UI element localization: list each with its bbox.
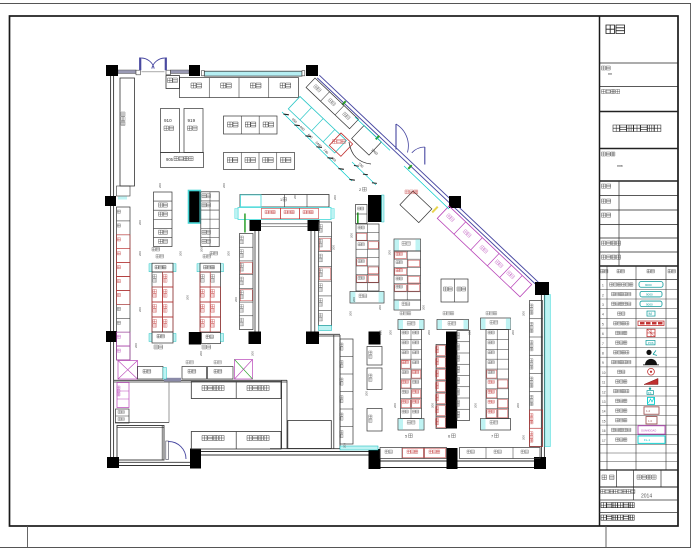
svg-text:200: 200 bbox=[474, 403, 478, 408]
svg-text:7: 7 bbox=[602, 342, 604, 346]
svg-text:13: 13 bbox=[602, 400, 606, 404]
svg-text:**: ** bbox=[608, 73, 612, 79]
svg-text:***: *** bbox=[617, 165, 623, 171]
svg-text:200: 200 bbox=[422, 305, 426, 310]
svg-text:14: 14 bbox=[602, 410, 606, 414]
svg-text:FL-1: FL-1 bbox=[644, 438, 651, 442]
svg-text:POS: POS bbox=[648, 341, 654, 345]
svg-text:M: M bbox=[649, 311, 652, 316]
svg-text:4: 4 bbox=[602, 313, 604, 317]
svg-text:200: 200 bbox=[179, 251, 183, 256]
svg-text:200: 200 bbox=[431, 403, 435, 408]
svg-text:200: 200 bbox=[352, 297, 356, 302]
svg-text:905: 905 bbox=[166, 157, 174, 162]
svg-text:200: 200 bbox=[234, 297, 238, 302]
svg-text:200: 200 bbox=[511, 330, 515, 335]
svg-text:200: 200 bbox=[251, 351, 255, 356]
svg-text:200: 200 bbox=[349, 311, 353, 316]
svg-text:200: 200 bbox=[293, 194, 297, 199]
svg-text:200: 200 bbox=[186, 295, 190, 300]
svg-text:200: 200 bbox=[516, 403, 520, 408]
svg-text:200: 200 bbox=[199, 351, 203, 356]
svg-text:200: 200 bbox=[378, 305, 382, 310]
svg-text:200: 200 bbox=[333, 195, 337, 200]
svg-text:1: 1 bbox=[280, 198, 282, 202]
svg-text:GUANGGAO: GUANGGAO bbox=[641, 428, 656, 432]
svg-text:10: 10 bbox=[602, 371, 606, 375]
svg-text:200: 200 bbox=[522, 435, 526, 440]
svg-text:200: 200 bbox=[138, 251, 142, 256]
svg-text:17: 17 bbox=[602, 439, 606, 443]
svg-text:200: 200 bbox=[222, 183, 226, 188]
svg-text:3: 3 bbox=[602, 303, 604, 307]
svg-text:6: 6 bbox=[602, 332, 604, 336]
svg-text:1.2: 1.2 bbox=[646, 409, 651, 413]
svg-text:9000: 9000 bbox=[645, 283, 652, 287]
svg-text:200: 200 bbox=[379, 330, 383, 335]
svg-text:200: 200 bbox=[427, 330, 431, 335]
svg-text:200: 200 bbox=[138, 220, 142, 225]
svg-text:200: 200 bbox=[350, 233, 354, 238]
svg-text:FS: FS bbox=[648, 391, 652, 395]
svg-text:200: 200 bbox=[200, 247, 204, 252]
svg-text:200: 200 bbox=[365, 391, 369, 396]
svg-text:5: 5 bbox=[602, 322, 604, 326]
svg-text:910: 910 bbox=[164, 118, 172, 123]
svg-text:12: 12 bbox=[602, 390, 606, 394]
svg-text:9: 9 bbox=[602, 361, 604, 365]
svg-text:16: 16 bbox=[602, 429, 606, 433]
svg-text:200: 200 bbox=[158, 183, 162, 188]
svg-text:200: 200 bbox=[468, 330, 472, 335]
svg-text:200: 200 bbox=[138, 307, 142, 312]
svg-text:919: 919 bbox=[188, 118, 196, 123]
svg-text:200: 200 bbox=[343, 443, 347, 448]
svg-text:200: 200 bbox=[388, 250, 392, 255]
svg-text:200: 200 bbox=[227, 251, 231, 256]
svg-text:200: 200 bbox=[134, 343, 138, 348]
svg-text:9000: 9000 bbox=[646, 302, 653, 306]
svg-text:1.0: 1.0 bbox=[648, 419, 653, 423]
svg-text:2: 2 bbox=[602, 293, 604, 297]
svg-text:15: 15 bbox=[602, 419, 606, 423]
svg-text:200: 200 bbox=[332, 245, 336, 250]
svg-text:200: 200 bbox=[522, 311, 526, 316]
svg-text:200: 200 bbox=[389, 330, 393, 335]
svg-text:8: 8 bbox=[602, 352, 604, 356]
svg-text:11: 11 bbox=[602, 381, 606, 385]
svg-text:1: 1 bbox=[602, 284, 604, 288]
svg-text:200: 200 bbox=[393, 403, 397, 408]
svg-text:9000: 9000 bbox=[646, 293, 653, 297]
svg-text:2014: 2014 bbox=[641, 494, 652, 500]
